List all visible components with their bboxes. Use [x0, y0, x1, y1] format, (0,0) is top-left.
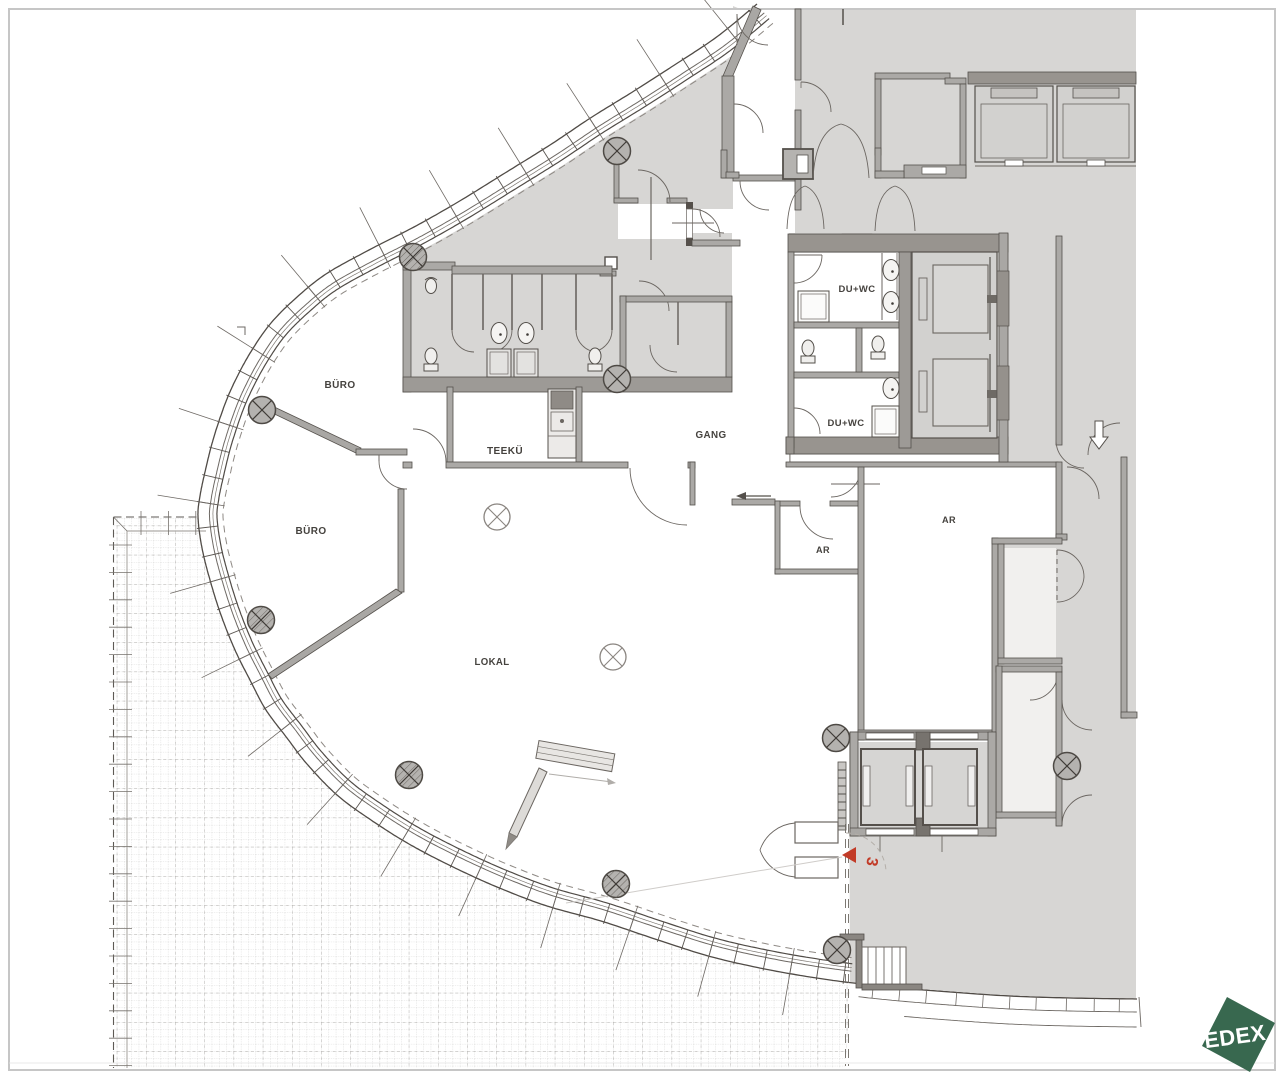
svg-text:BÜRO: BÜRO — [296, 524, 327, 537]
svg-text:LOKAL: LOKAL — [475, 657, 510, 668]
svg-text:AR: AR — [816, 545, 830, 555]
svg-text:DU+WC: DU+WC — [839, 284, 876, 295]
svg-text:DU+WC: DU+WC — [828, 418, 865, 429]
svg-text:AR: AR — [942, 515, 956, 525]
svg-text:GANG: GANG — [696, 430, 727, 441]
svg-text:BÜRO: BÜRO — [325, 378, 356, 391]
svg-text:TEEKÜ: TEEKÜ — [487, 444, 523, 457]
